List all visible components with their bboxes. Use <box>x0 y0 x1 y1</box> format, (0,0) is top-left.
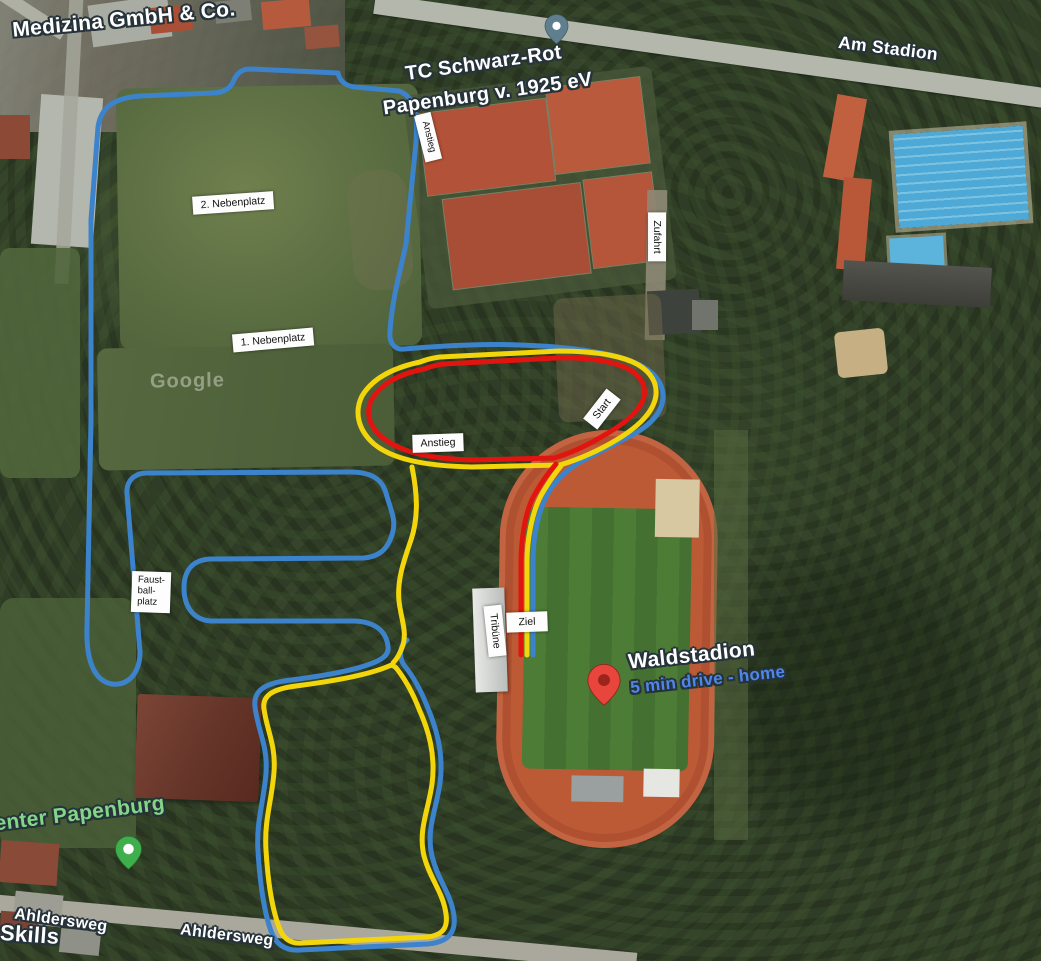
satellite-map[interactable]: Google 2. Nebenplatz 1. Nebenplatz Ansti… <box>0 0 1041 961</box>
tennis-club-pin-icon[interactable] <box>540 6 573 52</box>
label-anstieg-mid: Anstieg <box>412 433 464 453</box>
course-routes-overlay <box>0 0 1041 961</box>
label-faustballplatz: Faust- ball- platz <box>131 571 171 613</box>
fitness-center-pin-icon[interactable] <box>110 828 147 877</box>
label-zufahrt: Zufahrt <box>648 212 666 261</box>
partial-pin-tip-icon[interactable] <box>38 0 68 8</box>
place-label-skills[interactable]: Skills <box>0 920 60 950</box>
route-blue <box>87 69 663 950</box>
label-ziel: Ziel <box>506 611 548 632</box>
waldstadion-pin-icon[interactable] <box>581 653 627 716</box>
